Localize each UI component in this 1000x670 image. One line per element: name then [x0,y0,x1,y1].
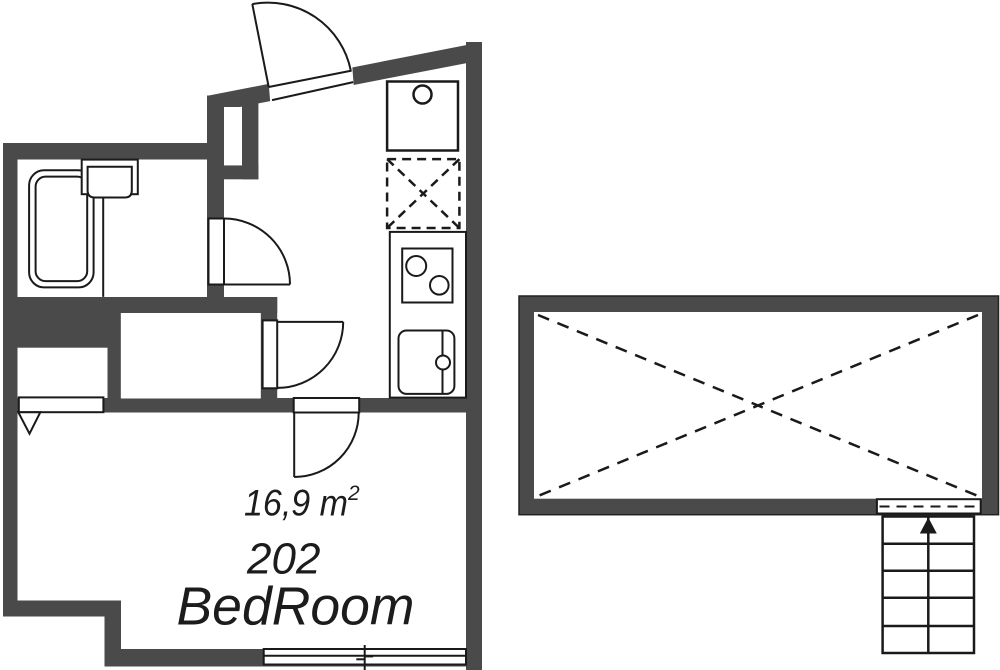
svg-text:16,9 m: 16,9 m [244,483,348,524]
svg-text:202: 202 [246,535,320,584]
svg-text:2: 2 [347,482,360,505]
svg-text:BedRoom: BedRoom [177,578,415,637]
